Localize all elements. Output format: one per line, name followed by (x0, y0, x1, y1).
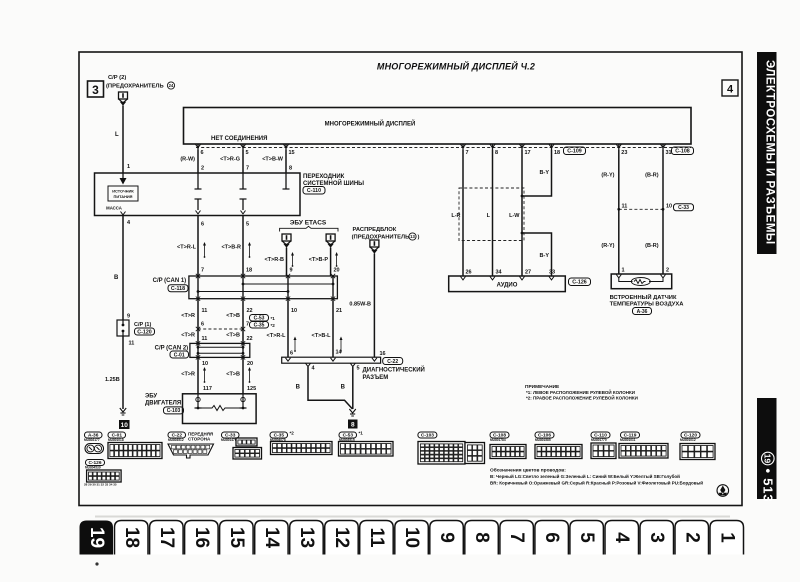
svg-text:<T>B: <T>B (226, 313, 240, 319)
svg-text:14: 14 (261, 527, 282, 549)
svg-text:22: 22 (247, 308, 253, 314)
svg-text:<T>R: <T>R (181, 372, 195, 378)
svg-text:24: 24 (169, 83, 174, 88)
svg-text:Обозначения цветов проводов:: Обозначения цветов проводов: (490, 467, 566, 474)
svg-text:<T>R-L: <T>R-L (177, 245, 197, 251)
svg-text:ТЕМПЕРАТУРЫ ВОЗДУХА: ТЕМПЕРАТУРЫ ВОЗДУХА (610, 302, 685, 308)
svg-text:11: 11 (202, 308, 208, 314)
svg-text:9: 9 (290, 268, 293, 274)
svg-text:MU801784: MU801784 (490, 438, 506, 442)
svg-text:31: 31 (666, 150, 672, 156)
svg-text:(ПРЕДОХРАНИТЕЛЬ: (ПРЕДОХРАНИТЕЛЬ (106, 84, 164, 90)
svg-text:2: 2 (681, 532, 702, 543)
svg-text:ДИАГНОСТИЧЕСКИЙ: ДИАГНОСТИЧЕСКИЙ (363, 366, 425, 374)
svg-text:<T>R-L: <T>R-L (267, 333, 287, 339)
svg-text:1.25B: 1.25B (105, 377, 120, 383)
svg-text:B: B (114, 275, 119, 281)
svg-text:• 513: • 513 (760, 469, 775, 503)
svg-text:НЕТ СОЕДИНЕНИЯ: НЕТ СОЕДИНЕНИЯ (211, 136, 267, 142)
svg-text:34: 34 (496, 270, 503, 276)
svg-text:19: 19 (86, 527, 107, 548)
svg-text:4: 4 (611, 532, 632, 543)
svg-text:7: 7 (246, 322, 249, 328)
svg-text:11: 11 (622, 204, 628, 210)
svg-text:<T>B: <T>B (226, 333, 240, 339)
svg-text:C-110: C-110 (307, 188, 321, 194)
svg-text:*2: *2 (290, 431, 295, 436)
svg-text:6: 6 (201, 150, 204, 156)
svg-text:B-Y: B-Y (540, 253, 550, 259)
svg-text:<T>R: <T>R (181, 313, 195, 319)
svg-text:9: 9 (127, 314, 130, 320)
svg-text:РАЗЪЕМ: РАЗЪЕМ (363, 375, 389, 381)
svg-text:23: 23 (621, 150, 627, 156)
svg-text:C-22: C-22 (387, 359, 398, 365)
svg-text:<T>B-P: <T>B-P (309, 257, 329, 263)
svg-text:5: 5 (246, 222, 249, 228)
svg-text:125: 125 (247, 386, 256, 392)
svg-text:15: 15 (289, 150, 295, 156)
svg-text:(B-R): (B-R) (645, 243, 659, 249)
svg-text:10: 10 (666, 204, 672, 210)
svg-text:15: 15 (226, 527, 247, 549)
svg-text:18: 18 (246, 268, 252, 274)
svg-text:L-W: L-W (509, 213, 520, 219)
svg-text:C-33: C-33 (678, 205, 689, 211)
svg-text:26: 26 (466, 270, 472, 276)
svg-text:6: 6 (290, 351, 293, 357)
svg-text:8: 8 (471, 532, 492, 543)
svg-text:ИСТОЧНИК: ИСТОЧНИК (112, 189, 134, 194)
svg-text:C/P (1): C/P (1) (134, 322, 151, 328)
svg-text:*1: *1 (359, 431, 364, 436)
svg-text:5: 5 (357, 366, 360, 372)
svg-text:C/P (2): C/P (2) (108, 75, 126, 81)
svg-text:10: 10 (202, 361, 208, 367)
svg-text:ЭБУ ETACS: ЭБУ ETACS (290, 220, 327, 227)
svg-text:<T>R: <T>R (181, 333, 195, 339)
svg-text:MU801018: MU801018 (108, 438, 124, 442)
svg-text:11: 11 (129, 341, 135, 347)
svg-text:СТОРОНА: СТОРОНА (188, 437, 211, 442)
svg-text:7: 7 (246, 166, 249, 172)
svg-text:10: 10 (401, 527, 422, 548)
svg-text:6: 6 (201, 222, 204, 228)
svg-text:АУДИО: АУДИО (497, 283, 518, 289)
svg-text:C/P (CAN 1): C/P (CAN 1) (153, 278, 187, 284)
svg-text:L: L (115, 132, 119, 138)
svg-text:16: 16 (191, 527, 212, 548)
svg-text:B: B (341, 385, 346, 391)
svg-text:BR: Коричневый O:Оранжевый GR:: BR: Коричневый O:Оранжевый GR:Серый R:Кр… (490, 480, 703, 486)
svg-text:22: 22 (247, 336, 253, 342)
svg-text:12: 12 (331, 527, 352, 548)
svg-text:(B-R): (B-R) (645, 173, 659, 179)
svg-text:MU804539: MU804539 (85, 466, 101, 470)
svg-text:33: 33 (549, 270, 555, 276)
svg-text:11: 11 (366, 527, 387, 548)
svg-text:16: 16 (380, 351, 386, 357)
svg-text:C-120: C-120 (137, 329, 151, 335)
svg-text:B-Y: B-Y (540, 170, 550, 176)
svg-text:20: 20 (247, 361, 253, 367)
svg-text:13: 13 (410, 234, 415, 239)
svg-text:8: 8 (495, 150, 498, 156)
svg-text:17: 17 (156, 527, 177, 548)
svg-text:MU801476: MU801476 (221, 438, 237, 442)
svg-text:<T>B: <T>B (226, 372, 240, 378)
svg-text:1: 1 (716, 532, 737, 543)
svg-text:A-36: A-36 (637, 309, 648, 315)
svg-text:MU801770: MU801770 (591, 438, 607, 442)
svg-text:C-126: C-126 (572, 280, 586, 286)
svg-text:(R-Y): (R-Y) (601, 173, 614, 179)
svg-text:): ) (418, 235, 420, 241)
svg-text:9: 9 (436, 532, 457, 543)
svg-text:*1: *1 (271, 316, 276, 321)
svg-text:17: 17 (525, 150, 531, 156)
svg-text:ДВИГАТЕЛЯ: ДВИГАТЕЛЯ (145, 401, 181, 407)
svg-text:<T>R-B: <T>R-B (264, 257, 284, 263)
svg-text:28 29 30 31 32 33 34 35: 28 29 30 31 32 33 34 35 (84, 483, 117, 487)
svg-text:MU801011: MU801011 (620, 438, 636, 442)
svg-text:117: 117 (203, 386, 212, 392)
svg-text:5: 5 (576, 532, 597, 543)
svg-text:MU801012: MU801012 (680, 438, 696, 442)
svg-text:18: 18 (554, 150, 560, 156)
svg-text:7: 7 (506, 532, 527, 543)
svg-text:C-108: C-108 (675, 149, 689, 155)
svg-text:3: 3 (92, 83, 99, 97)
svg-text:4: 4 (727, 84, 734, 96)
svg-text:C-35: C-35 (254, 323, 265, 329)
svg-text:СИСТЕМНОЙ ШИНЫ: СИСТЕМНОЙ ШИНЫ (303, 179, 364, 187)
svg-text:MU801585: MU801585 (535, 438, 551, 442)
svg-text:C-01: C-01 (174, 352, 185, 358)
svg-text:(R-Y): (R-Y) (601, 243, 614, 249)
svg-text:B: Черный LG:Светло зеленый G:: B: Черный LG:Светло зеленый G:Зеленый L:… (490, 473, 680, 479)
svg-text:10: 10 (121, 422, 129, 429)
svg-text:C-53: C-53 (254, 316, 265, 322)
svg-text:C-118: C-118 (171, 286, 185, 292)
svg-text:ВСТРОЕННЫЙ ДАТЧИК: ВСТРОЕННЫЙ ДАТЧИК (610, 293, 677, 301)
svg-text:*2: *2 (271, 323, 276, 328)
svg-text:10: 10 (291, 308, 297, 314)
svg-text:5: 5 (246, 150, 249, 156)
svg-text:РАСПРЕДБЛОК: РАСПРЕДБЛОК (353, 227, 397, 233)
svg-text:(ПРЕДОХРАНИТЕЛЬ: (ПРЕДОХРАНИТЕЛЬ (352, 235, 410, 241)
svg-text:6: 6 (541, 532, 562, 543)
svg-text:7: 7 (201, 268, 204, 274)
svg-text:C-103: C-103 (421, 433, 434, 439)
svg-text:MU802177: MU802177 (84, 438, 100, 442)
svg-text:2: 2 (201, 166, 204, 172)
svg-text:<T>R-G: <T>R-G (220, 157, 240, 163)
svg-text:21: 21 (336, 308, 342, 314)
svg-text:МНОГОРЕЖИМНЫЙ ДИСПЛЕЙ Ч.2: МНОГОРЕЖИМНЫЙ ДИСПЛЕЙ Ч.2 (377, 61, 535, 72)
svg-text:0.85W-B: 0.85W-B (349, 302, 371, 308)
svg-text:<T>B-R: <T>B-R (221, 245, 241, 251)
svg-text:<T>B-L: <T>B-L (312, 333, 332, 339)
svg-text:8: 8 (289, 166, 292, 172)
svg-text:*2: ПРАВОЕ РАСПОЛОЖЕНИЕ РУЛЕВО: *2: ПРАВОЕ РАСПОЛОЖЕНИЕ РУЛЕВОЙ КОЛОНКИ (526, 394, 638, 401)
svg-text:ПЕРЕХОДНИК: ПЕРЕХОДНИК (303, 174, 345, 180)
svg-text:C-109: C-109 (567, 149, 581, 155)
svg-text:MU803512: MU803512 (168, 438, 184, 442)
svg-text:*1: ЛЕВОЕ РАСПОЛОЖЕНИЕ РУЛЕВОЙ: *1: ЛЕВОЕ РАСПОЛОЖЕНИЕ РУЛЕВОЙ КОЛОНКИ (526, 388, 635, 395)
svg-text:13: 13 (296, 527, 317, 548)
svg-text:ПИТАНИЯ: ПИТАНИЯ (114, 194, 133, 199)
svg-text:МАССА: МАССА (106, 206, 122, 211)
svg-text:3: 3 (646, 532, 667, 543)
svg-text:2: 2 (666, 268, 669, 274)
svg-text:8: 8 (351, 421, 355, 428)
svg-text:27: 27 (525, 270, 531, 276)
svg-text:1: 1 (127, 164, 130, 170)
svg-text:6: 6 (201, 322, 204, 328)
svg-text:7: 7 (466, 150, 469, 156)
svg-text:19: 19 (763, 454, 773, 464)
svg-text:11: 11 (202, 336, 208, 342)
svg-text:ЭБУ: ЭБУ (145, 394, 157, 400)
svg-text:20: 20 (334, 268, 340, 274)
svg-text:B: B (296, 385, 301, 391)
svg-text:ЭЛЕКТРОСХЕМЫ И РАЗЪЕМЫ: ЭЛЕКТРОСХЕМЫ И РАЗЪЕМЫ (764, 60, 776, 245)
svg-text:МНОГОРЕЖИМНЫЙ ДИСПЛЕЙ: МНОГОРЕЖИМНЫЙ ДИСПЛЕЙ (325, 120, 416, 128)
svg-text:(R-W): (R-W) (180, 157, 195, 163)
svg-text:18: 18 (121, 527, 142, 548)
svg-text:C-103: C-103 (167, 408, 181, 414)
svg-text:1: 1 (622, 268, 625, 274)
svg-text:<T>B-W: <T>B-W (262, 157, 284, 163)
